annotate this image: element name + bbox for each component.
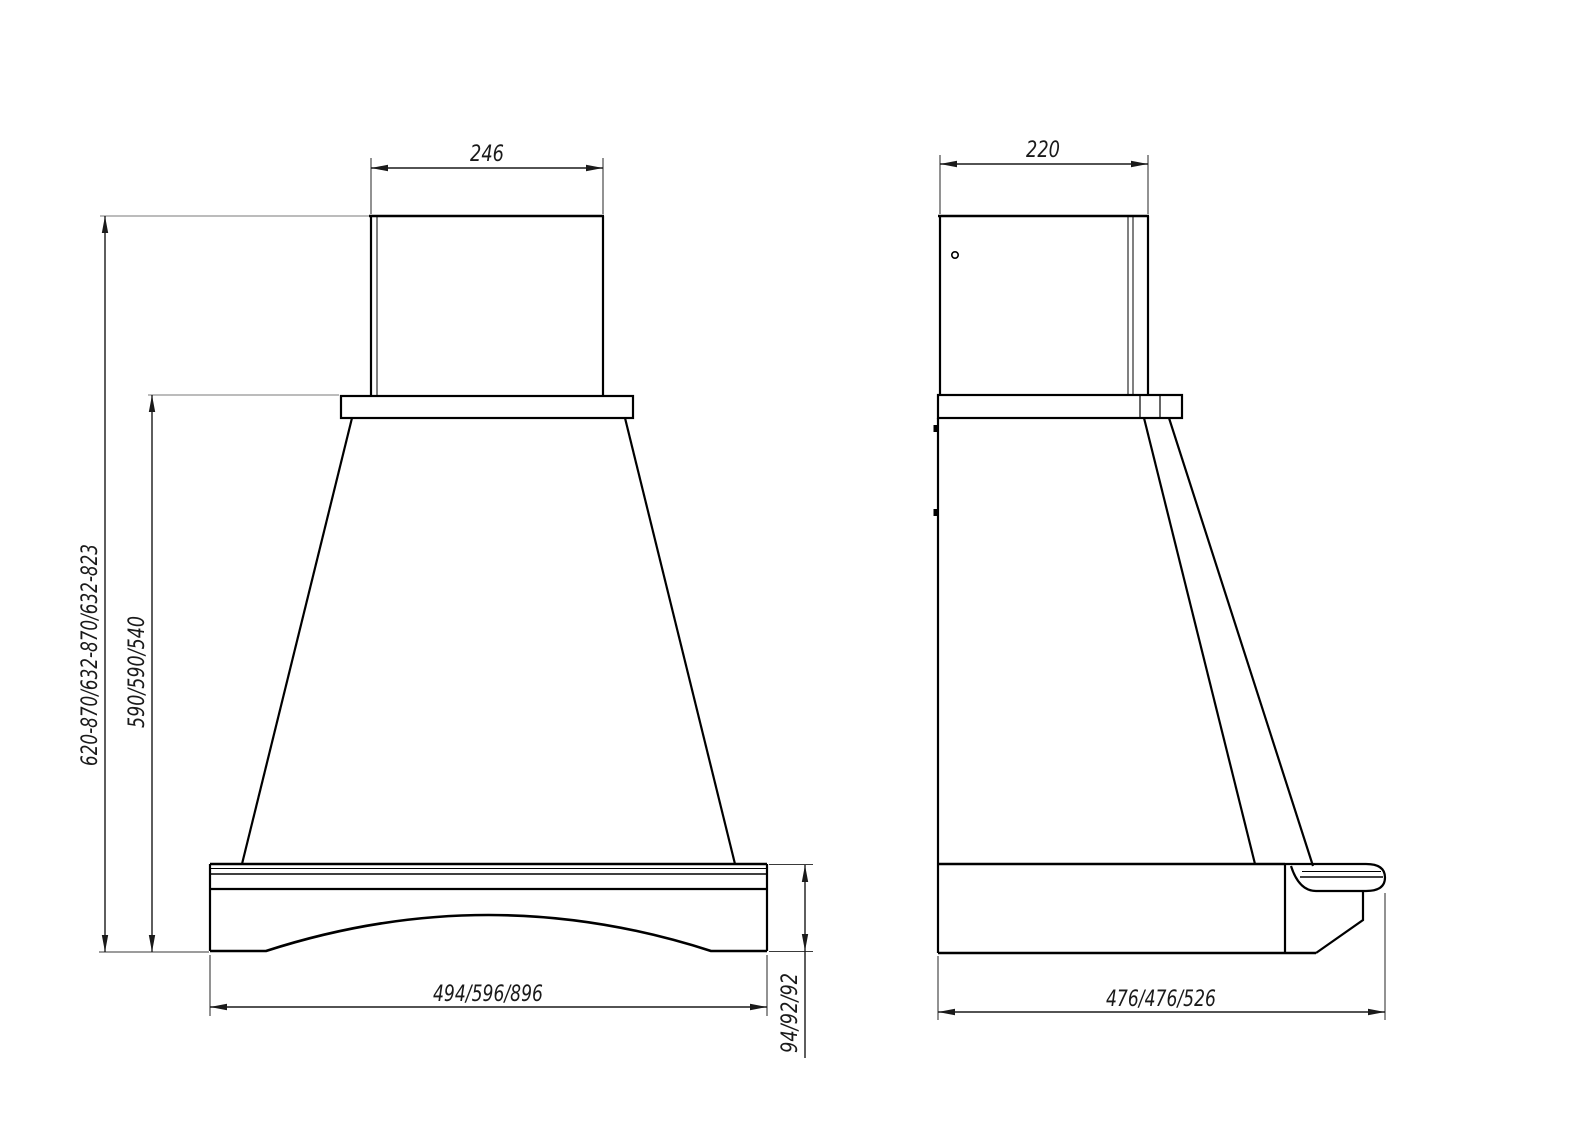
arrowhead-up <box>102 216 108 233</box>
dim-label-chimney-depth: 220 <box>1026 138 1060 163</box>
dim-front-overall-height: 620-870/632-870/632-823 <box>78 216 369 952</box>
side-view: 220 476/476/526 <box>934 138 1386 1020</box>
arrowhead-right <box>586 165 603 171</box>
arrowhead-left <box>940 161 957 167</box>
front-collar-board <box>341 396 633 418</box>
front-canopy <box>242 418 735 864</box>
drawing-canvas: 246 620-870/632-870/632-823 590/590/540 <box>0 0 1588 1123</box>
mounting-stud <box>934 425 939 432</box>
arrowhead-right <box>1368 1009 1385 1015</box>
side-base <box>938 864 1385 953</box>
side-molding-nose-fillet <box>1291 866 1316 891</box>
front-base-band <box>210 864 767 951</box>
dim-side-base-depth: 476/476/526 <box>938 893 1385 1020</box>
front-view: 246 620-870/632-870/632-823 590/590/540 <box>78 142 813 1058</box>
arrowhead-right <box>750 1004 767 1010</box>
technical-drawing-page: 246 620-870/632-870/632-823 590/590/540 <box>0 0 1588 1123</box>
front-base-arch-cutout <box>210 915 767 951</box>
mounting-stud <box>934 509 939 516</box>
front-chimney <box>369 216 604 396</box>
dim-label-chimney-width: 246 <box>470 142 504 167</box>
side-canopy-front-slope <box>1169 418 1313 866</box>
arrowhead-left <box>938 1009 955 1015</box>
dim-front-base-width: 494/596/896 <box>210 955 767 1016</box>
dim-label-base-height: 94/92/92 <box>778 973 803 1053</box>
arrowhead-down <box>802 934 808 951</box>
side-base-chamfer <box>1316 891 1363 953</box>
side-body <box>934 418 1314 953</box>
dim-label-overall-height: 620-870/632-870/632-823 <box>78 544 103 766</box>
dim-front-chimney-width: 246 <box>371 142 603 214</box>
side-collar <box>938 395 1182 418</box>
dim-side-chimney-depth: 220 <box>940 138 1148 214</box>
arrowhead-down <box>149 935 155 952</box>
front-canopy-left-slope <box>242 418 352 864</box>
side-collar-board <box>938 395 1182 418</box>
arrowhead-right <box>1131 161 1148 167</box>
front-canopy-right-slope <box>625 418 735 864</box>
arrowhead-down <box>102 935 108 952</box>
dim-label-base-width: 494/596/896 <box>433 982 543 1007</box>
arrowhead-left <box>210 1004 227 1010</box>
side-chimney <box>938 216 1149 395</box>
arrowhead-left <box>371 165 388 171</box>
screw-hole <box>952 252 958 258</box>
dim-label-base-depth: 476/476/526 <box>1106 987 1216 1012</box>
arrowhead-up <box>802 865 808 882</box>
dim-label-body-height: 590/590/540 <box>125 616 150 728</box>
arrowhead-up <box>149 395 155 412</box>
side-canopy-inner-slope <box>1144 418 1255 864</box>
dim-front-base-height: 94/92/92 <box>769 865 813 1059</box>
